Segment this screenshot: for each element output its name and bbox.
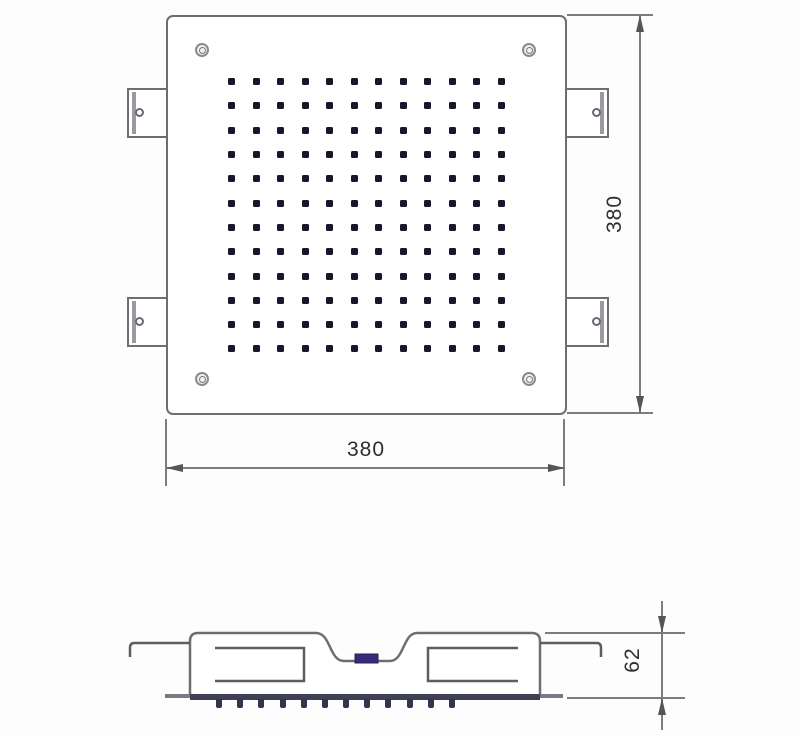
nozzle-dot xyxy=(424,273,431,280)
nozzle-dot xyxy=(375,273,382,280)
nozzle-dot xyxy=(228,175,235,182)
nozzle-dot xyxy=(277,248,284,255)
nozzle-dot xyxy=(375,127,382,134)
side-nozzle-stub xyxy=(364,699,370,708)
nozzle-dot xyxy=(326,78,333,85)
nozzle-dot xyxy=(424,297,431,304)
dim-extension-line-side-bottom xyxy=(567,697,685,699)
dim-label-width-380: 380 xyxy=(326,438,406,462)
nozzle-dot xyxy=(449,273,456,280)
nozzle-dot xyxy=(375,102,382,109)
dim-arrow-up-62 xyxy=(658,698,666,715)
nozzle-dot xyxy=(277,127,284,134)
side-nozzle-stub xyxy=(258,699,264,708)
nozzle-dot xyxy=(498,151,505,158)
nozzle-dot xyxy=(302,78,309,85)
nozzle-dot xyxy=(228,151,235,158)
nozzle-dot xyxy=(351,273,358,280)
nozzle-dot xyxy=(253,224,260,231)
nozzle-dot xyxy=(326,345,333,352)
nozzle-dot xyxy=(424,102,431,109)
nozzle-dot xyxy=(326,200,333,207)
nozzle-dot xyxy=(473,297,480,304)
nozzle-dot xyxy=(449,345,456,352)
nozzle-dot xyxy=(302,200,309,207)
nozzle-dot xyxy=(449,102,456,109)
nozzle-dot xyxy=(228,297,235,304)
side-nozzle-stub xyxy=(216,699,222,708)
nozzle-dot xyxy=(253,345,260,352)
nozzle-dot xyxy=(424,127,431,134)
nozzle-dot xyxy=(302,248,309,255)
nozzle-dot xyxy=(326,321,333,328)
dim-extension-line-right xyxy=(563,419,565,486)
nozzle-dot xyxy=(400,345,407,352)
nozzle-dot xyxy=(302,321,309,328)
dim-line-vertical-380 xyxy=(639,15,641,413)
nozzle-dot xyxy=(400,248,407,255)
nozzle-dot xyxy=(228,248,235,255)
dim-extension-line-left xyxy=(165,419,167,486)
nozzle-dot xyxy=(351,102,358,109)
nozzle-dot xyxy=(302,345,309,352)
nozzle-dot xyxy=(253,127,260,134)
side-nozzle-stub xyxy=(385,699,391,708)
nozzle-dot xyxy=(400,273,407,280)
nozzle-dot xyxy=(253,78,260,85)
nozzle-dot xyxy=(277,200,284,207)
nozzle-dot xyxy=(449,151,456,158)
nozzle-dot xyxy=(498,175,505,182)
dim-label-depth-62: 62 xyxy=(621,639,645,681)
nozzle-grid xyxy=(0,0,800,737)
nozzle-dot xyxy=(277,297,284,304)
dim-arrow-up xyxy=(636,15,644,32)
nozzle-dot xyxy=(498,345,505,352)
nozzle-dot xyxy=(473,273,480,280)
nozzle-dot xyxy=(400,102,407,109)
nozzle-dot xyxy=(473,224,480,231)
nozzle-dot xyxy=(424,321,431,328)
nozzle-dot xyxy=(228,102,235,109)
nozzle-dot xyxy=(253,273,260,280)
side-nozzle-stub xyxy=(237,699,243,708)
nozzle-dot xyxy=(228,200,235,207)
nozzle-dot xyxy=(228,345,235,352)
nozzle-dot xyxy=(400,175,407,182)
nozzle-dot xyxy=(326,273,333,280)
nozzle-dot xyxy=(326,175,333,182)
nozzle-dot xyxy=(473,151,480,158)
nozzle-dot xyxy=(253,175,260,182)
nozzle-dot xyxy=(498,297,505,304)
nozzle-dot xyxy=(253,297,260,304)
nozzle-dot xyxy=(253,102,260,109)
nozzle-dot xyxy=(351,151,358,158)
nozzle-dot xyxy=(498,127,505,134)
nozzle-dot xyxy=(253,248,260,255)
nozzle-dot xyxy=(400,224,407,231)
nozzle-dot xyxy=(326,248,333,255)
nozzle-dot xyxy=(351,127,358,134)
nozzle-dot xyxy=(400,200,407,207)
nozzle-dot xyxy=(351,175,358,182)
nozzle-dot xyxy=(351,200,358,207)
side-nozzle-stub xyxy=(301,699,307,708)
nozzle-dot xyxy=(228,127,235,134)
nozzle-dot xyxy=(375,224,382,231)
nozzle-dot xyxy=(302,273,309,280)
nozzle-dot xyxy=(375,321,382,328)
technical-drawing-page: { "diagram": { "type": "technical-drawin… xyxy=(0,0,800,737)
nozzle-dot xyxy=(424,345,431,352)
nozzle-dot xyxy=(473,345,480,352)
nozzle-dot xyxy=(351,345,358,352)
nozzle-dot xyxy=(253,151,260,158)
nozzle-dot xyxy=(498,224,505,231)
nozzle-dot xyxy=(400,127,407,134)
nozzle-dot xyxy=(473,127,480,134)
nozzle-dot xyxy=(498,273,505,280)
nozzle-dot xyxy=(424,151,431,158)
nozzle-dot xyxy=(277,224,284,231)
nozzle-dot xyxy=(302,127,309,134)
nozzle-dot xyxy=(326,151,333,158)
nozzle-dot xyxy=(449,78,456,85)
nozzle-dot xyxy=(424,200,431,207)
nozzle-dot xyxy=(449,248,456,255)
nozzle-dot xyxy=(400,78,407,85)
nozzle-dot xyxy=(498,321,505,328)
nozzle-dot xyxy=(498,200,505,207)
nozzle-dot xyxy=(277,345,284,352)
nozzle-dot xyxy=(449,224,456,231)
nozzle-dot xyxy=(302,175,309,182)
side-nozzle-stub xyxy=(449,699,455,708)
nozzle-dot xyxy=(375,151,382,158)
nozzle-dot xyxy=(400,297,407,304)
nozzle-dot xyxy=(326,224,333,231)
nozzle-dot xyxy=(375,345,382,352)
nozzle-dot xyxy=(375,78,382,85)
nozzle-dot xyxy=(375,248,382,255)
dim-label-height-380: 380 xyxy=(603,183,627,245)
nozzle-dot xyxy=(302,102,309,109)
nozzle-dot xyxy=(424,248,431,255)
nozzle-dot xyxy=(375,297,382,304)
nozzle-dot xyxy=(277,78,284,85)
nozzle-dot xyxy=(253,321,260,328)
nozzle-dot xyxy=(449,321,456,328)
nozzle-dot xyxy=(375,200,382,207)
nozzle-dot xyxy=(277,175,284,182)
dim-arrow-down xyxy=(636,396,644,413)
nozzle-dot xyxy=(424,175,431,182)
nozzle-dot xyxy=(302,224,309,231)
nozzle-dot xyxy=(400,151,407,158)
nozzle-dot xyxy=(498,248,505,255)
nozzle-dot xyxy=(473,102,480,109)
nozzle-dot xyxy=(473,321,480,328)
dim-arrow-down-62 xyxy=(658,616,666,633)
nozzle-dot xyxy=(375,175,382,182)
side-nozzle-stub xyxy=(407,699,413,708)
nozzle-dot xyxy=(351,321,358,328)
nozzle-dot xyxy=(400,321,407,328)
nozzle-dot xyxy=(498,78,505,85)
nozzle-dot xyxy=(449,175,456,182)
nozzle-dot xyxy=(473,78,480,85)
nozzle-dot xyxy=(449,297,456,304)
nozzle-dot xyxy=(473,175,480,182)
side-nozzle-stub xyxy=(280,699,286,708)
nozzle-dot xyxy=(326,127,333,134)
nozzle-dot xyxy=(253,200,260,207)
nozzle-dot xyxy=(498,102,505,109)
dim-arrow-right xyxy=(548,464,565,472)
nozzle-dot xyxy=(228,78,235,85)
nozzle-dot xyxy=(473,248,480,255)
side-nozzle-stub xyxy=(343,699,349,708)
nozzle-dot xyxy=(302,151,309,158)
dim-line-horizontal-380 xyxy=(166,467,565,469)
nozzle-dot xyxy=(277,102,284,109)
nozzle-dot xyxy=(351,297,358,304)
nozzle-dot xyxy=(351,78,358,85)
nozzle-dot xyxy=(277,273,284,280)
nozzle-dot xyxy=(277,321,284,328)
nozzle-dot xyxy=(473,200,480,207)
side-nozzle-stub xyxy=(322,699,328,708)
side-nozzle-stub xyxy=(428,699,434,708)
nozzle-dot xyxy=(326,102,333,109)
dim-arrow-left xyxy=(166,464,183,472)
nozzle-dot xyxy=(326,297,333,304)
nozzle-dot xyxy=(449,200,456,207)
nozzle-dot xyxy=(302,297,309,304)
nozzle-dot xyxy=(228,224,235,231)
nozzle-dot xyxy=(351,224,358,231)
nozzle-dot xyxy=(424,78,431,85)
nozzle-dot xyxy=(228,321,235,328)
nozzle-dot xyxy=(449,127,456,134)
nozzle-dot xyxy=(351,248,358,255)
nozzle-dot xyxy=(277,151,284,158)
nozzle-dot xyxy=(228,273,235,280)
nozzle-dot xyxy=(424,224,431,231)
